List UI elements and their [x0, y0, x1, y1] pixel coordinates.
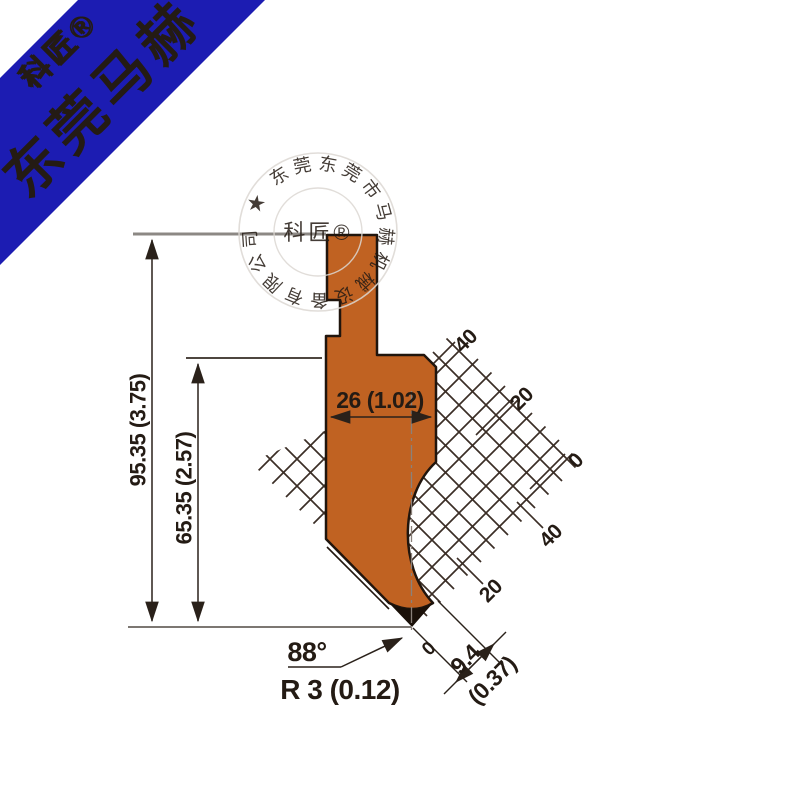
watermark-center-text: 科匠® [283, 220, 352, 245]
dim-label-shoulder-height: 65.35 (2.57) [172, 432, 197, 545]
corner-banner: 科匠® 科匠® 东莞马赫 [0, 0, 265, 265]
dim-label-body-width: 26 (1.02) [336, 387, 424, 413]
leader-line [341, 638, 402, 667]
dim-shoulder-height: 65.35 (2.57) [172, 364, 199, 621]
dim-label-tip-radius: R 3 (0.12) [280, 674, 400, 705]
dim-label-total-height: 95.35 (3.75) [126, 374, 151, 487]
dim-body-width: 26 (1.02) [331, 387, 431, 417]
punch-tool-drawing: 40 20 0 40 20 95.35 (3.75) 65.35 (2.57) … [0, 0, 800, 800]
dim-total-height: 95.35 (3.75) [126, 240, 153, 621]
dim-label-zero: 0 [418, 638, 440, 660]
dim-label-tip-angle: 88° [287, 637, 326, 667]
drawing-canvas: 40 20 0 40 20 95.35 (3.75) 65.35 (2.57) … [0, 0, 800, 800]
tip-callout: 88° R 3 (0.12) [280, 637, 402, 705]
dim-tip-offset: 0 9.4 (0.37) [413, 601, 521, 709]
